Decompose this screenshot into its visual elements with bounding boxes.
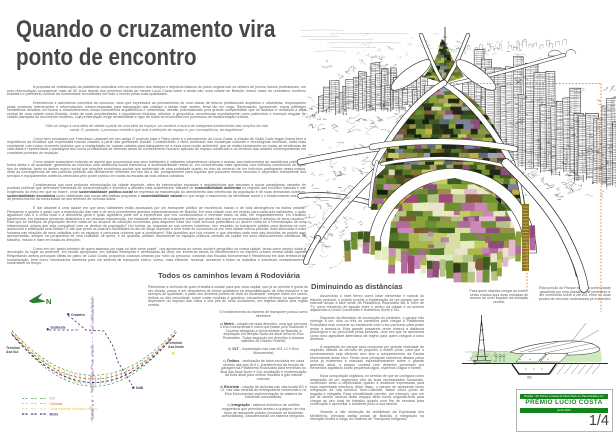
svg-text:W3: W3 xyxy=(527,376,532,380)
svg-text:VLT: VLT xyxy=(50,397,56,401)
svg-text:Sudoeste: Sudoeste xyxy=(50,326,65,330)
svg-text:Linha expressa rodoviária inte: Linha expressa rodoviária interna xyxy=(50,407,97,411)
svg-text:Ciclovias: Ciclovias xyxy=(50,402,63,406)
svg-text:Cruzeiro: Cruzeiro xyxy=(71,313,85,317)
svg-text:N: N xyxy=(46,297,51,306)
svg-text:Asa Norte: Asa Norte xyxy=(168,345,184,349)
svg-text:UnB: UnB xyxy=(136,386,144,390)
svg-text:Asa Sul: Asa Sul xyxy=(6,350,18,354)
svg-text:Metrô: Metrô xyxy=(50,412,59,416)
